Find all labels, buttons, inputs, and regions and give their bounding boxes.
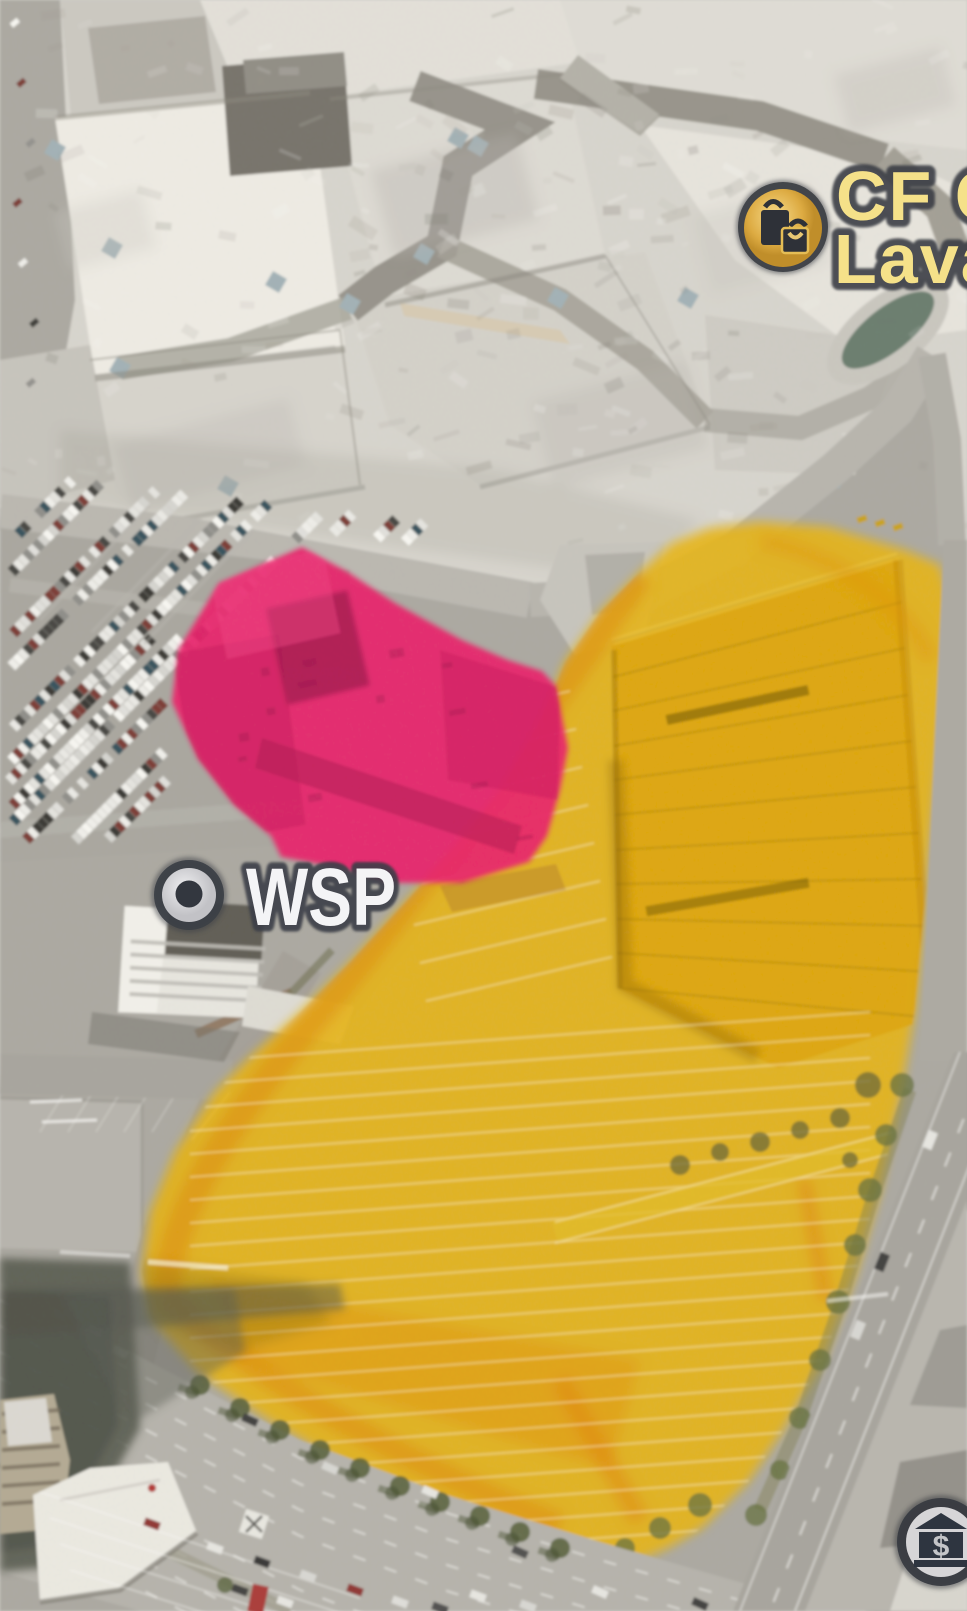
svg-text:WSP: WSP — [246, 852, 396, 943]
svg-text:$: $ — [933, 1530, 950, 1563]
svg-text:Laval: Laval — [834, 220, 967, 298]
